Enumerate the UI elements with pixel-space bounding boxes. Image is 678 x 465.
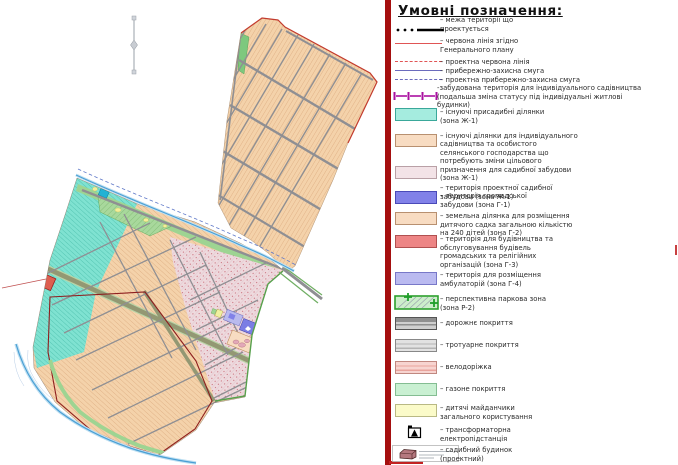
legend-label: – прибережно-захисна смуга xyxy=(440,67,673,76)
legend-label: – територія для розміщення амбулаторій (… xyxy=(440,271,673,288)
legend-swatch-existing-homestead xyxy=(395,108,437,121)
legend-swatch-ambulatory xyxy=(395,272,437,285)
legend-swatch-sidewalk xyxy=(395,339,437,352)
right-edge-red-mark xyxy=(675,245,677,255)
legend-label: – тротуарне покриття xyxy=(440,341,673,350)
legend-swatch-existing-gardening xyxy=(395,134,437,147)
legend-swatch-religious-buildings xyxy=(395,235,437,248)
legend-symbol-project-coastal-strip-line xyxy=(395,79,442,80)
legend-symbol-coastal-strip-line xyxy=(395,70,442,71)
north-arrow-icon xyxy=(131,16,138,74)
zoning-map-svg xyxy=(0,0,385,465)
legend-label: – територія для будівництва та обслугову… xyxy=(440,235,673,269)
legend-label: – земельна ділянка для розміщення дитячо… xyxy=(440,212,673,238)
legend-label: – перспективна паркова зона (зона Р-2) xyxy=(440,295,673,312)
legend-swatch-public-building xyxy=(395,191,437,204)
legend-transformer-icon xyxy=(407,425,423,444)
legend-symbol-red-line xyxy=(395,43,442,44)
legend-swatch-kindergarten xyxy=(395,212,437,225)
legend-label: – межа території що проектується xyxy=(440,16,673,33)
legend-label: – проектна червона лінія xyxy=(440,58,673,67)
legend-symbol-project-red-line xyxy=(395,61,442,62)
red-line-extension xyxy=(2,279,46,288)
legend-left-border xyxy=(385,0,391,465)
legend-swatch-park-zone xyxy=(393,293,443,317)
zoning-plan-document: Умовні позначення: xyxy=(0,0,678,465)
legend-swatch-bike-path xyxy=(395,361,437,374)
legend-label: – дитячі майданчики загального користува… xyxy=(440,404,673,421)
legend-swatch-project-homestead xyxy=(395,166,437,179)
legend-label: – дорожнє покриття xyxy=(440,319,673,328)
legend-label: – газоне покриття xyxy=(440,385,673,394)
legend-swatch-playgrounds xyxy=(395,404,437,417)
legend-swatch-road-surface xyxy=(395,317,437,330)
legend-label: – велодоріжка xyxy=(440,363,673,372)
legend-label: – існуючі присадибні ділянки (зона Ж-1) xyxy=(440,108,673,125)
legend-label: – трансформаторна електропідстанція xyxy=(440,426,673,443)
legend-symbol-project-boundary xyxy=(395,19,445,38)
legend-label: – проектна прибережно-захисна смуга xyxy=(440,76,673,85)
legend-panel: Умовні позначення: xyxy=(385,0,678,465)
map-area xyxy=(0,0,385,465)
legend-swatch-lawn xyxy=(395,383,437,396)
legend-label: – червона лінія згідно Генерального план… xyxy=(440,37,673,54)
legend-label: -забудована територія для індивідуальног… xyxy=(437,84,670,110)
legend-label: – існуючі ділянки для індивідуального са… xyxy=(440,132,673,182)
east-exit-road xyxy=(279,264,322,303)
legend-label: – територія громадської забудови (зона Г… xyxy=(440,192,673,209)
legend-label: – садибний будинок (проектний) xyxy=(440,446,673,463)
